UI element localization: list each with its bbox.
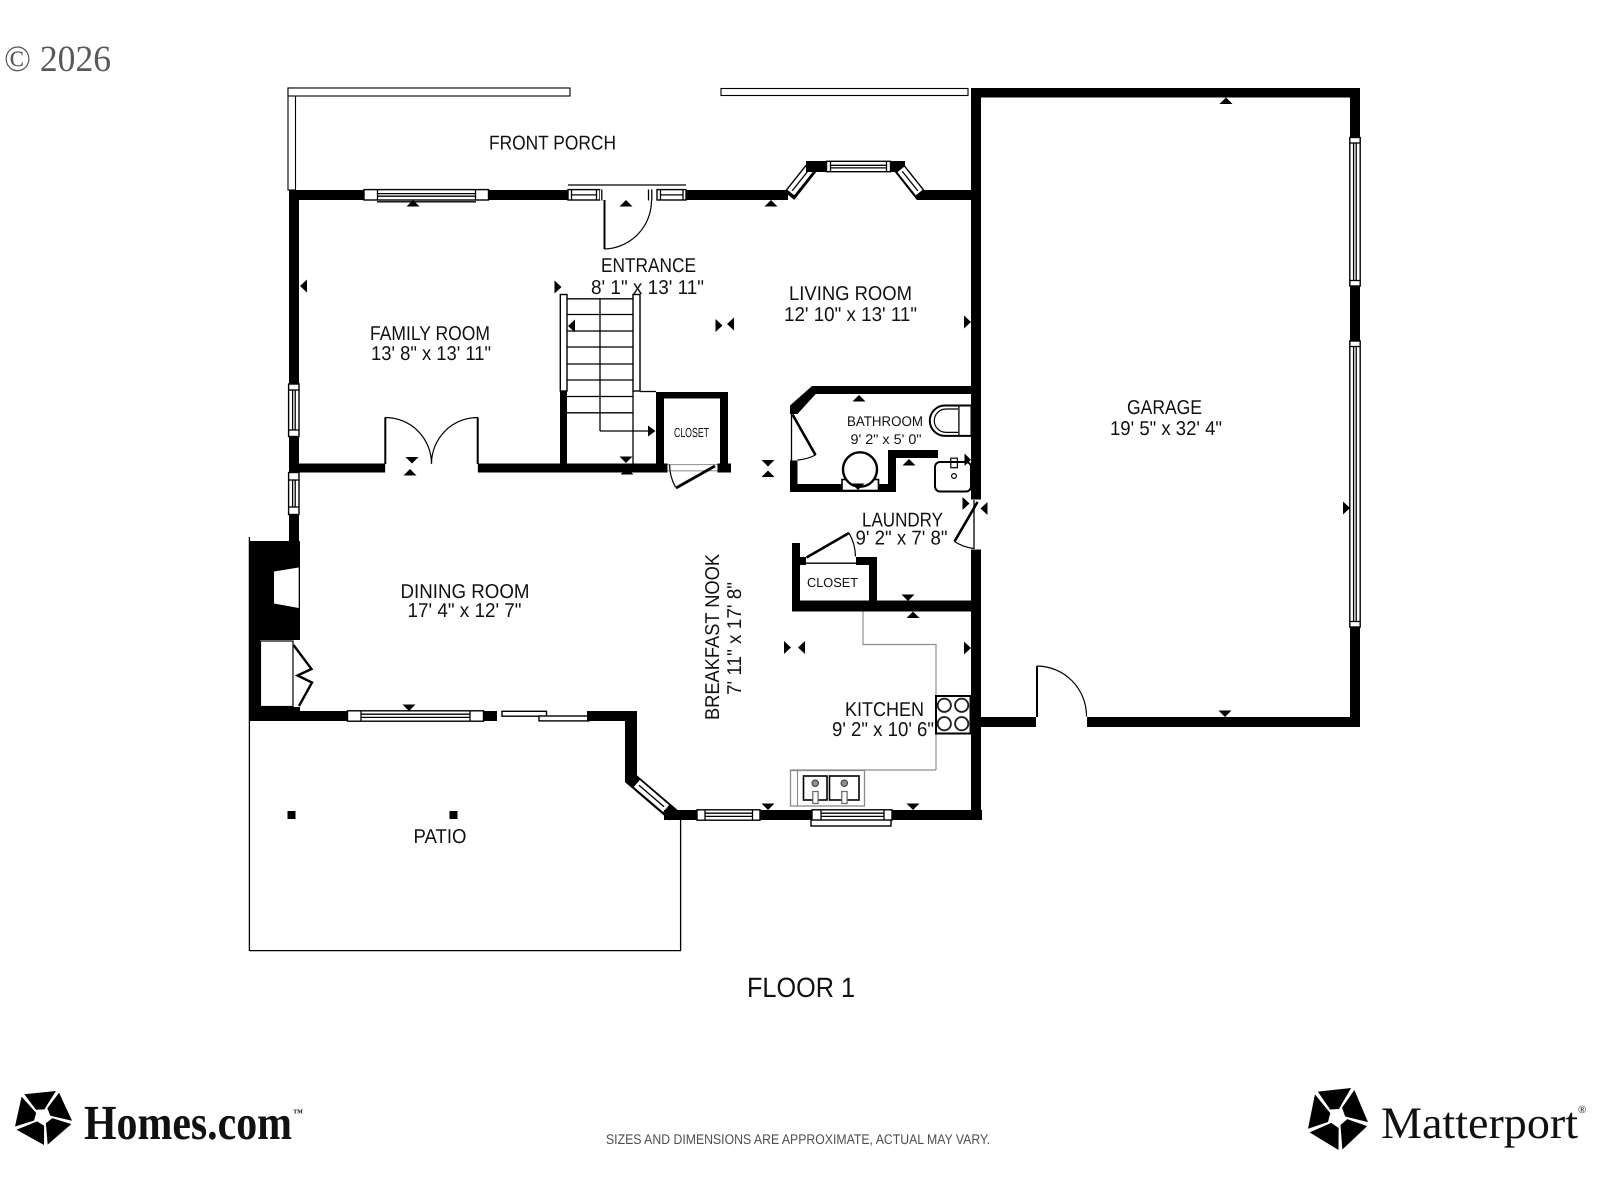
svg-text:9' 2" x 7' 8": 9' 2" x 7' 8" (856, 528, 948, 550)
svg-text:12' 10" x 13' 11": 12' 10" x 13' 11" (784, 304, 917, 326)
svg-text:CLOSET: CLOSET (807, 575, 858, 590)
svg-text:KITCHEN: KITCHEN (845, 699, 924, 721)
svg-text:8' 1" x 13' 11": 8' 1" x 13' 11" (591, 277, 704, 299)
svg-text:ENTRANCE: ENTRANCE (601, 255, 696, 277)
svg-text:BREAKFAST NOOK: BREAKFAST NOOK (702, 553, 724, 720)
svg-text:Matterport: Matterport (1381, 1098, 1579, 1148)
svg-text:9' 2" x 5' 0": 9' 2" x 5' 0" (851, 431, 922, 447)
svg-text:19' 5" x 32' 4": 19' 5" x 32' 4" (1110, 418, 1222, 440)
svg-text:PATIO: PATIO (414, 826, 467, 848)
svg-text:CLOSET: CLOSET (674, 425, 709, 440)
svg-text:9' 2" x 10' 6": 9' 2" x 10' 6" (832, 719, 934, 741)
svg-text:FLOOR 1: FLOOR 1 (747, 972, 855, 1003)
svg-text:®: ® (1578, 1104, 1586, 1116)
svg-text:7' 11" x 17' 8": 7' 11" x 17' 8" (724, 582, 746, 695)
svg-text:BATHROOM: BATHROOM (847, 413, 923, 429)
svg-text:© 2026: © 2026 (4, 39, 111, 80)
svg-text:™: ™ (293, 1108, 303, 1119)
svg-text:FRONT PORCH: FRONT PORCH (489, 132, 616, 154)
svg-text:FAMILY ROOM: FAMILY ROOM (370, 323, 490, 345)
svg-text:Homes.com: Homes.com (84, 1095, 292, 1150)
svg-text:SIZES AND DIMENSIONS ARE APPRO: SIZES AND DIMENSIONS ARE APPROXIMATE, AC… (606, 1131, 990, 1147)
svg-text:13' 8" x 13' 11": 13' 8" x 13' 11" (371, 343, 491, 365)
svg-text:17' 4" x 12' 7": 17' 4" x 12' 7" (408, 600, 522, 622)
svg-text:GARAGE: GARAGE (1127, 397, 1202, 419)
svg-text:LIVING ROOM: LIVING ROOM (789, 283, 912, 305)
